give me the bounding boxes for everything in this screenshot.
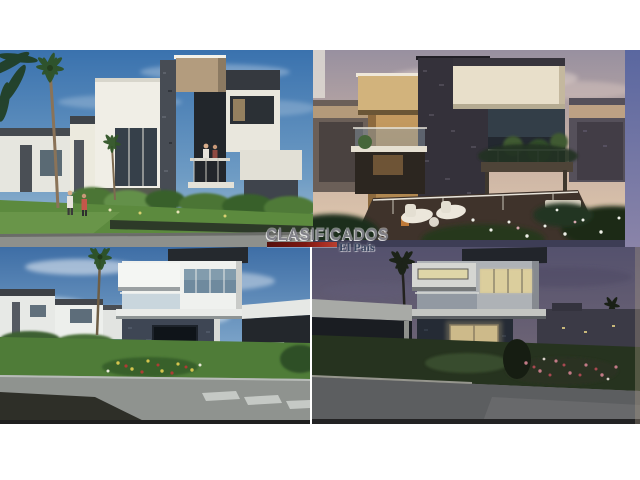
photo-night-house-render: [312, 247, 640, 424]
photo-sunset-terrace-render: [313, 50, 640, 247]
photo-day-house-cars-render: [0, 247, 310, 424]
background-houses: [537, 303, 640, 347]
day-cars-render-illustration: [0, 247, 310, 424]
photo-day-street-render: [0, 50, 313, 247]
watermark-brand-text: CLASIFICADOS: [266, 226, 406, 243]
lit-windows: [480, 269, 532, 293]
bottom-dark-strip: [312, 419, 640, 424]
day-render-illustration: [0, 50, 313, 247]
right-blue-strip: [625, 50, 640, 247]
sunset-render-illustration: [313, 50, 640, 247]
watermark-publication-text: El País: [339, 241, 375, 253]
property-photo-collage: CLASIFICADOS El País: [0, 50, 640, 424]
classified-ad-photo-page: CLASIFICADOS El País: [0, 0, 640, 480]
watermark-red-bar: [267, 242, 337, 247]
background-house-right: [569, 98, 631, 182]
newspaper-watermark: CLASIFICADOS El País: [266, 226, 416, 260]
night-render-illustration: [312, 247, 640, 424]
right-edge-sliver: [635, 247, 640, 424]
edge-sliver: [313, 50, 325, 98]
lit-lawn-patch: [425, 353, 509, 373]
bottom-dark-strip: [0, 420, 310, 424]
